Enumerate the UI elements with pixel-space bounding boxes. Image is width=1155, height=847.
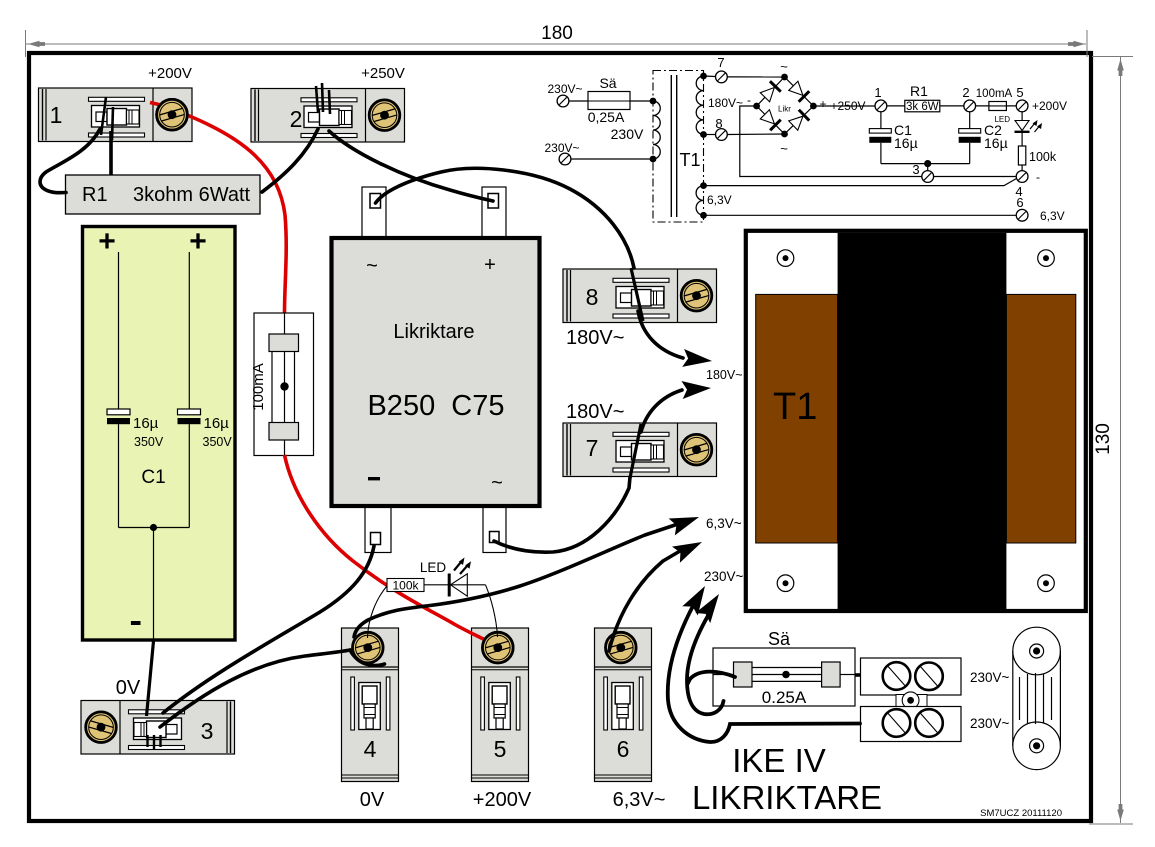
svg-text:SM7UCZ 20111120: SM7UCZ 20111120 <box>980 808 1062 819</box>
svg-text:230V~: 230V~ <box>970 716 1010 731</box>
svg-text:+200V: +200V <box>473 789 532 811</box>
svg-text:0V: 0V <box>360 789 385 811</box>
svg-text:8: 8 <box>586 284 599 310</box>
svg-text:Likr: Likr <box>778 105 791 114</box>
svg-text:230V~: 230V~ <box>544 141 579 155</box>
svg-text:+250V: +250V <box>361 65 405 82</box>
svg-text:0.25A: 0.25A <box>762 688 807 707</box>
svg-text:R1: R1 <box>82 184 108 206</box>
svg-text:180: 180 <box>541 23 573 44</box>
svg-text:T1: T1 <box>773 386 817 428</box>
svg-text:R1: R1 <box>910 83 928 99</box>
svg-text:6,3V~: 6,3V~ <box>706 516 742 531</box>
svg-text:1: 1 <box>874 85 881 100</box>
svg-text:180V~: 180V~ <box>708 96 743 110</box>
svg-text:7: 7 <box>717 55 724 70</box>
svg-text:+: + <box>98 225 116 258</box>
svg-text:~: ~ <box>491 472 503 494</box>
svg-text:-: - <box>1036 170 1040 184</box>
svg-text:+250V: +250V <box>830 99 865 113</box>
svg-text:3kohm 6Watt: 3kohm 6Watt <box>133 184 251 206</box>
svg-text:100k: 100k <box>1029 150 1057 164</box>
svg-text:2: 2 <box>962 85 969 100</box>
svg-text:0,25A: 0,25A <box>588 109 625 125</box>
svg-text:230V: 230V <box>611 126 644 142</box>
svg-text:-: - <box>747 93 751 107</box>
svg-text:Sä: Sä <box>599 75 616 91</box>
svg-text:~: ~ <box>780 141 788 156</box>
svg-text:+: + <box>189 225 207 258</box>
svg-text:0V: 0V <box>116 677 141 699</box>
svg-text:LED: LED <box>420 560 447 575</box>
svg-text:B250 C75: B250 C75 <box>367 390 504 422</box>
svg-text:+: + <box>484 254 496 276</box>
svg-text:8: 8 <box>715 116 722 131</box>
svg-text:230V~: 230V~ <box>970 670 1010 685</box>
svg-text:Sä: Sä <box>768 629 791 649</box>
svg-text:130: 130 <box>1093 423 1114 455</box>
svg-text:+: + <box>819 97 826 111</box>
svg-text:6,3V: 6,3V <box>1040 209 1065 223</box>
svg-text:C1: C1 <box>141 467 165 488</box>
svg-text:100mA: 100mA <box>976 88 1013 100</box>
svg-text:1: 1 <box>50 102 63 128</box>
svg-text:100mA: 100mA <box>250 363 267 411</box>
svg-text:4: 4 <box>364 736 377 762</box>
svg-text:3: 3 <box>912 162 919 177</box>
svg-text:6,3V~: 6,3V~ <box>613 789 666 811</box>
svg-text:+200V: +200V <box>1032 99 1067 113</box>
svg-text:180V~: 180V~ <box>706 368 743 382</box>
svg-text:3: 3 <box>201 718 214 744</box>
svg-text:180V~: 180V~ <box>566 401 624 423</box>
svg-text:~: ~ <box>780 59 788 74</box>
svg-text:16µ: 16µ <box>894 135 918 151</box>
svg-text:2: 2 <box>290 106 303 132</box>
svg-text:350V: 350V <box>203 435 233 449</box>
svg-text:180V~: 180V~ <box>566 327 624 349</box>
svg-text:7: 7 <box>586 435 599 461</box>
svg-text:100k: 100k <box>392 579 419 593</box>
svg-text:230V~: 230V~ <box>547 82 582 96</box>
svg-text:16µ: 16µ <box>984 135 1008 151</box>
svg-text:5: 5 <box>494 736 507 762</box>
svg-text:Likriktare: Likriktare <box>393 321 474 343</box>
svg-text:T1: T1 <box>679 150 700 170</box>
svg-text:230V~: 230V~ <box>704 569 744 584</box>
svg-text:16µ: 16µ <box>204 415 230 432</box>
svg-text:6,3V: 6,3V <box>707 193 732 207</box>
svg-text:~: ~ <box>366 255 378 277</box>
svg-text:350V: 350V <box>134 435 164 449</box>
svg-text:+200V: +200V <box>148 65 192 82</box>
svg-text:16µ: 16µ <box>133 415 159 432</box>
svg-text:5: 5 <box>1016 85 1023 100</box>
svg-text:IKE IV: IKE IV <box>732 742 826 779</box>
svg-text:6: 6 <box>1016 195 1023 210</box>
svg-text:LIKRIKTARE: LIKRIKTARE <box>692 779 882 816</box>
svg-text:3k 6W: 3k 6W <box>906 101 939 113</box>
svg-text:6: 6 <box>617 736 630 762</box>
